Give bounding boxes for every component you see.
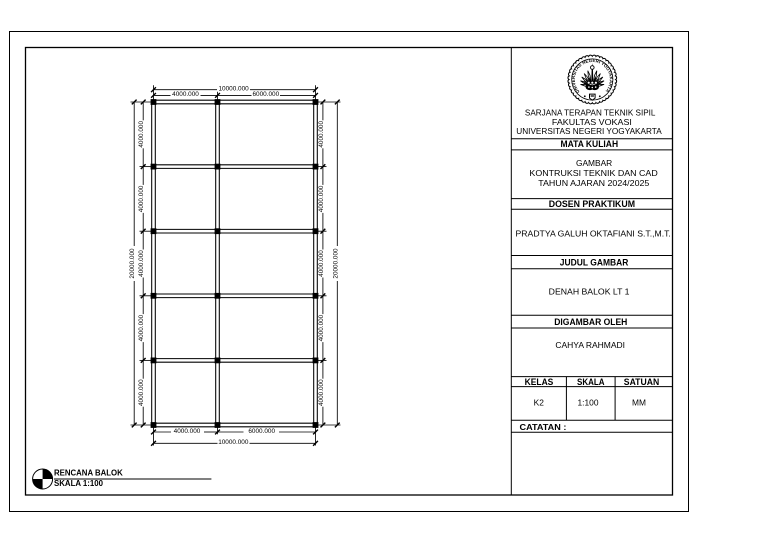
svg-text:MATA KULIAH: MATA KULIAH	[561, 139, 619, 149]
svg-text:GAMBAR: GAMBAR	[576, 158, 612, 168]
svg-text:10000.000: 10000.000	[218, 86, 249, 93]
svg-text:UNIVERSITAS NEGERI YOGYAKARTA: UNIVERSITAS NEGERI YOGYAKARTA	[516, 127, 662, 136]
svg-text:SKALA: SKALA	[577, 377, 605, 387]
svg-text:4000.000: 4000.000	[318, 379, 325, 406]
svg-text:4000.000: 4000.000	[318, 250, 325, 277]
svg-text:4000.000: 4000.000	[318, 185, 325, 212]
svg-text:KONTRUKSI TEKNIK DAN CAD: KONTRUKSI TEKNIK DAN CAD	[529, 168, 657, 178]
svg-text:1:100: 1:100	[578, 397, 599, 407]
svg-text:10000.000: 10000.000	[218, 439, 249, 446]
svg-text:DENAH BALOK LT 1: DENAH BALOK LT 1	[549, 287, 630, 297]
svg-text:SARJANA TERAPAN TEKNIK SIPIL: SARJANA TERAPAN TEKNIK SIPIL	[525, 109, 656, 118]
svg-text:4000.000: 4000.000	[138, 314, 145, 341]
svg-text:CAHYA RAHMADI: CAHYA RAHMADI	[555, 340, 625, 350]
svg-text:4000.000: 4000.000	[138, 379, 145, 406]
svg-text:KELAS: KELAS	[525, 377, 554, 387]
svg-text:4000.000: 4000.000	[318, 314, 325, 341]
svg-text:4000.000: 4000.000	[318, 121, 325, 148]
svg-text:4000.000: 4000.000	[138, 185, 145, 212]
svg-text:6000.000: 6000.000	[252, 91, 279, 98]
svg-text:20000.000: 20000.000	[129, 248, 136, 279]
svg-text:FAKULTAS VOKASI: FAKULTAS VOKASI	[552, 118, 632, 127]
svg-text:PRADTYA GALUH OKTAFIANI S.T.,M: PRADTYA GALUH OKTAFIANI S.T.,M.T.	[516, 229, 671, 239]
svg-text:SATUAN: SATUAN	[624, 377, 659, 387]
svg-text:K2: K2	[534, 397, 545, 407]
svg-text:4000.000: 4000.000	[138, 121, 145, 148]
svg-text:4000.000: 4000.000	[174, 428, 201, 435]
svg-text:CATATAN :: CATATAN :	[520, 422, 567, 432]
svg-text:6000.000: 6000.000	[248, 428, 275, 435]
svg-text:DIGAMBAR OLEH: DIGAMBAR OLEH	[554, 317, 627, 327]
svg-text:20000.000: 20000.000	[332, 248, 339, 279]
svg-text:TAHUN AJARAN 2024/2025: TAHUN AJARAN 2024/2025	[538, 178, 649, 188]
svg-text:RENCANA BALOK: RENCANA BALOK	[54, 468, 123, 477]
svg-text:SKALA 1:100: SKALA 1:100	[54, 479, 103, 488]
svg-text:JUDUL GAMBAR: JUDUL GAMBAR	[560, 258, 629, 268]
svg-text:4000.000: 4000.000	[172, 91, 199, 98]
svg-text:DOSEN PRAKTIKUM: DOSEN PRAKTIKUM	[549, 199, 635, 209]
svg-text:4000.000: 4000.000	[138, 250, 145, 277]
svg-text:MM: MM	[632, 397, 646, 407]
